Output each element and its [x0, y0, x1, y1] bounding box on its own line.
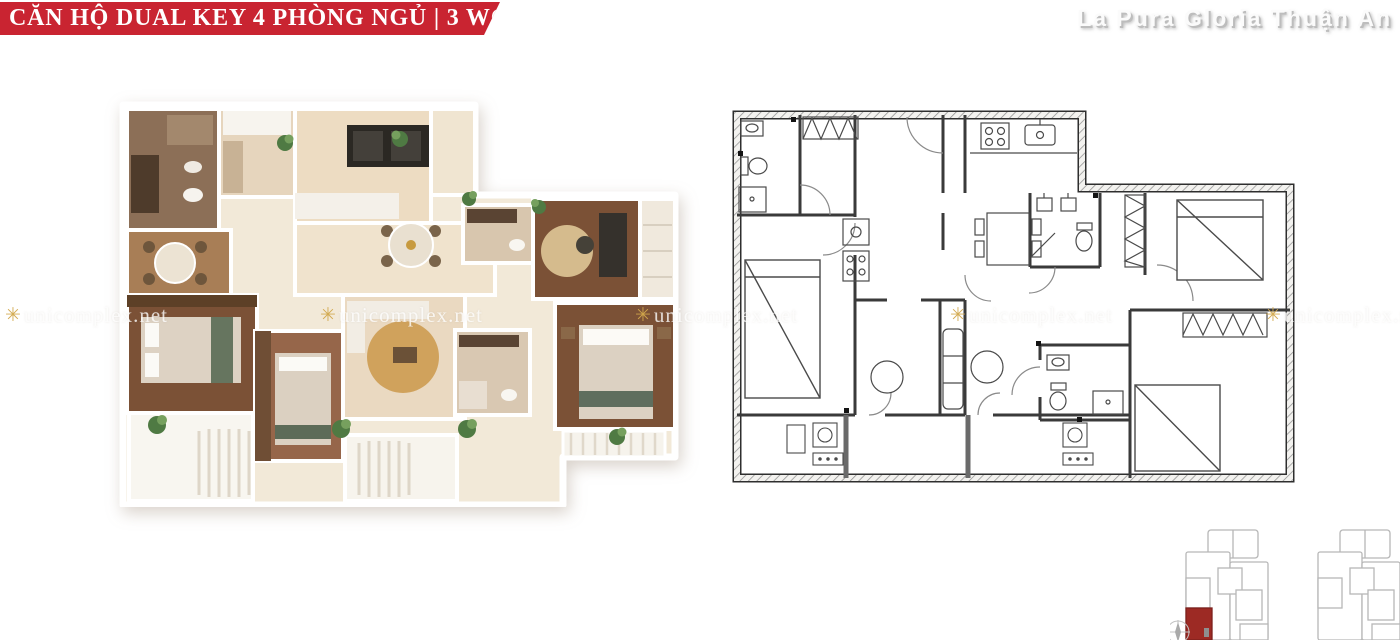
room-closet	[219, 109, 295, 197]
bed-2	[1177, 200, 1263, 280]
balcony-left	[129, 413, 253, 501]
page: CĂN HỘ DUAL KEY 4 PHÒNG NGỦ | 3 WC La Pu…	[0, 0, 1400, 640]
floorplan-3d	[115, 95, 685, 507]
room-dining-left	[127, 230, 231, 295]
room-bathroom-master	[127, 109, 219, 241]
room-hall-top-right	[431, 109, 475, 195]
banner-title: CĂN HỘ DUAL KEY 4 PHÒNG NGỦ | 3 WC	[9, 5, 509, 32]
room-bedroom-bottom	[255, 331, 343, 461]
balcony-bottom-middle	[345, 435, 457, 501]
bed-1	[745, 260, 820, 398]
room-bathroom-2	[463, 205, 535, 263]
room-office	[533, 199, 640, 299]
gold-starburst-icon: ✳	[5, 306, 21, 325]
floorplan-2d	[725, 105, 1300, 490]
room-living	[343, 295, 465, 419]
room-bathroom-3	[455, 330, 530, 415]
project-title: La Pura Gloria Thuận An	[1077, 5, 1392, 32]
title-banner: CĂN HỘ DUAL KEY 4 PHÒNG NGỦ | 3 WC	[0, 2, 500, 35]
scale-figure	[1204, 628, 1209, 637]
room-bedroom-right	[555, 303, 675, 429]
building-left	[1186, 530, 1268, 640]
room-closet-right	[640, 199, 675, 299]
building-right	[1318, 530, 1400, 640]
bed-3	[1135, 385, 1220, 471]
room-kitchen	[295, 109, 431, 223]
site-plan	[1170, 518, 1400, 640]
watermark-text: unicomplex.net	[1284, 303, 1400, 328]
room-bedroom-left	[127, 295, 257, 413]
